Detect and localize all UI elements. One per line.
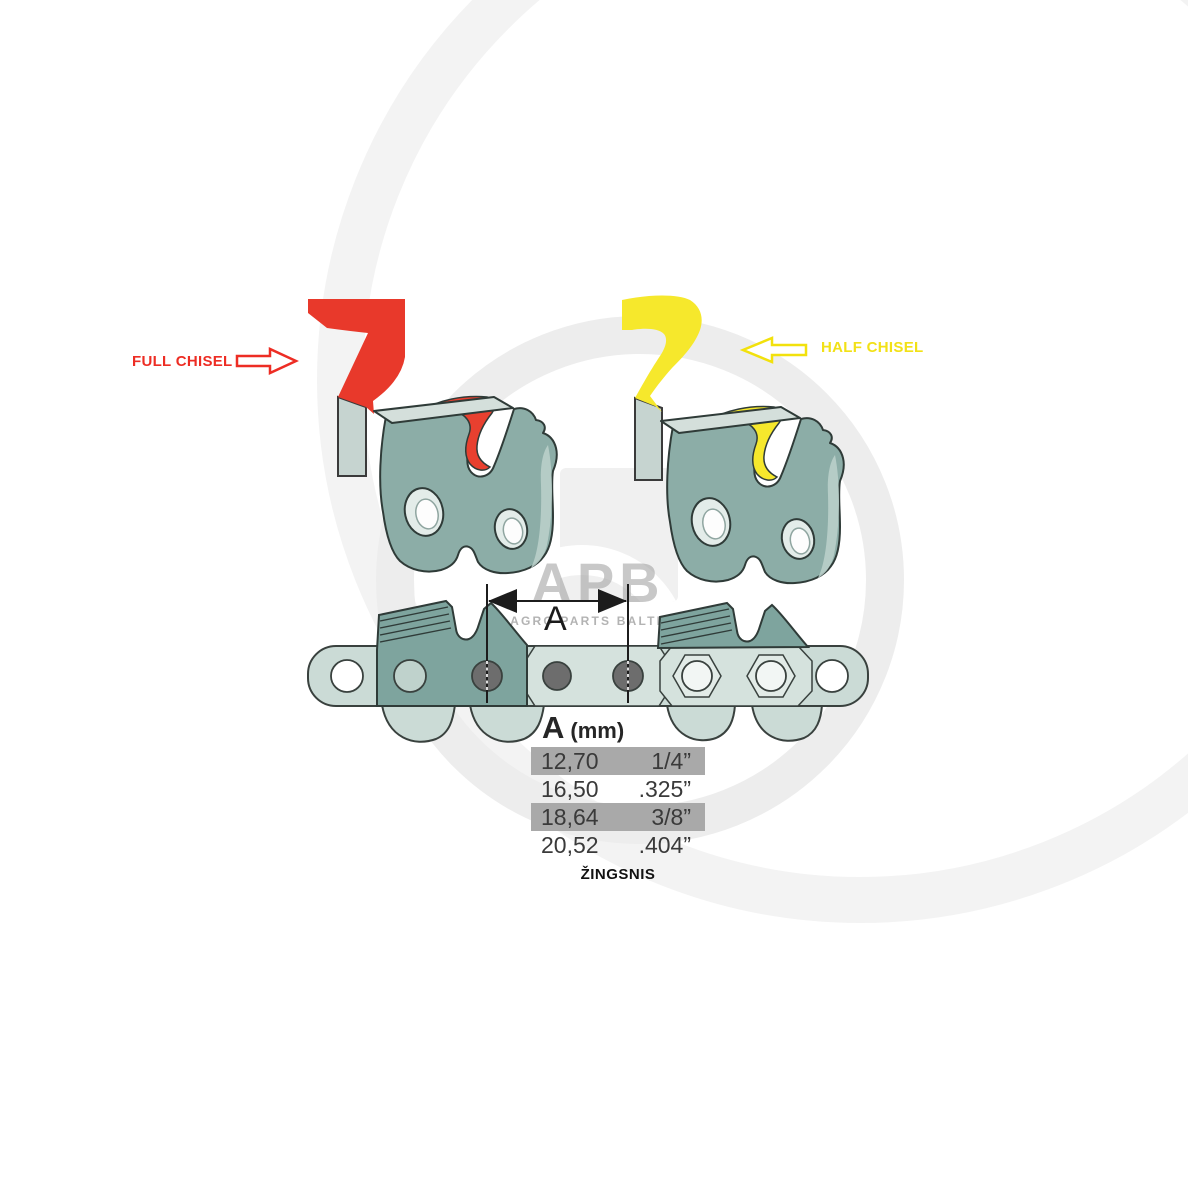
pitch-mm-value: 16,50 <box>541 776 599 803</box>
full-chisel-stem <box>338 397 366 476</box>
link-hole <box>816 660 848 692</box>
cutter-link-half-chisel <box>661 407 844 584</box>
full-chisel-label: FULL CHISEL <box>132 353 233 370</box>
pitch-table-header-symbol: A <box>542 710 564 746</box>
rivet <box>543 662 571 690</box>
pitch-table-row: 20,52 .404” <box>531 831 705 859</box>
pitch-table-row: 18,64 3/8” <box>531 803 705 831</box>
pitch-inch-value: .325” <box>639 776 691 803</box>
pitch-mm-value: 20,52 <box>541 832 599 859</box>
pitch-inch-value: 1/4” <box>651 748 691 775</box>
full-chisel-arrow-icon <box>237 349 296 373</box>
link-hole <box>756 661 786 691</box>
pitch-table-row: 12,70 1/4” <box>531 747 705 775</box>
chainsaw-chain-pitch-diagram: APB AGRO PARTS BALTIJA <box>0 0 1188 1188</box>
drive-link-bumper <box>667 705 735 740</box>
pitch-table: 12,70 1/4” 16,50 .325” 18,64 3/8” 20,52 … <box>531 747 705 859</box>
pitch-mm-value: 18,64 <box>541 804 599 831</box>
pitch-inch-value: .404” <box>639 832 691 859</box>
pitch-mm-value: 12,70 <box>541 748 599 775</box>
chain-illustration: APB AGRO PARTS BALTIJA <box>0 0 1188 1188</box>
pitch-table-row: 16,50 .325” <box>531 775 705 803</box>
pitch-table-header-unit: (mm) <box>570 718 624 744</box>
link-hole <box>331 660 363 692</box>
pitch-inch-value: 3/8” <box>651 804 691 831</box>
half-chisel-label: HALF CHISEL <box>821 339 923 356</box>
cutter-body <box>380 408 557 573</box>
watermark-caption: AGRO PARTS BALTIJA <box>510 614 682 628</box>
cutter-link-full-chisel <box>374 397 557 574</box>
dimension-symbol-label: A <box>544 600 567 639</box>
cutter-body <box>667 418 844 583</box>
half-chisel-stem <box>635 398 662 480</box>
pitch-table-header: A (mm) <box>542 710 624 746</box>
link-hole <box>682 661 712 691</box>
link-hole <box>394 660 426 692</box>
pitch-table-footer: ŽINGSNIS <box>531 866 705 883</box>
